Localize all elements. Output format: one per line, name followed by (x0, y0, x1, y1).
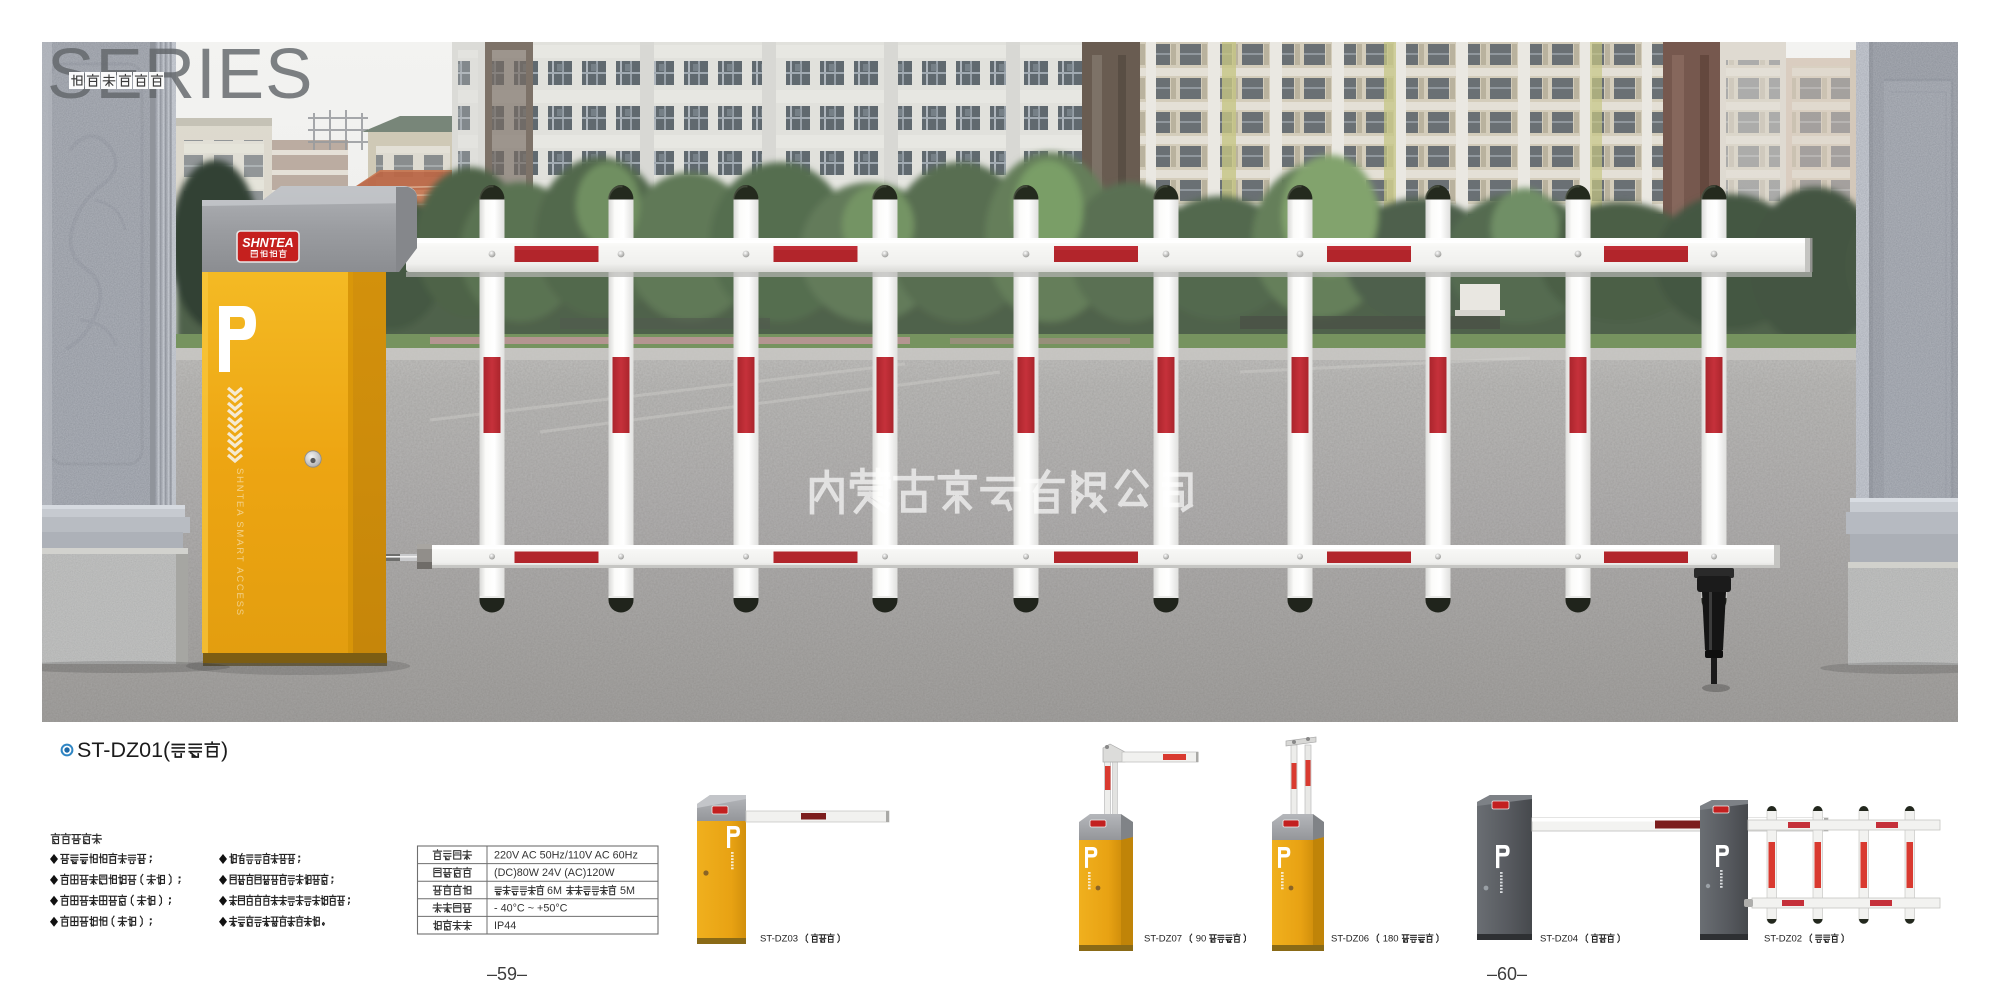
svg-text:90: 90 (1196, 933, 1207, 944)
svg-text:ST-DZ07: ST-DZ07 (1144, 933, 1182, 944)
svg-text:180: 180 (1383, 933, 1399, 944)
svg-text:220V AC 50Hz/110V AC 60Hz: 220V AC 50Hz/110V AC 60Hz (494, 850, 638, 862)
svg-text:ST-DZ01(: ST-DZ01( (77, 738, 171, 762)
svg-text:–60–: –60– (1487, 964, 1527, 984)
svg-text:ST-DZ02: ST-DZ02 (1764, 933, 1802, 944)
svg-text:- 40°C ~ +50°C: - 40°C ~ +50°C (494, 902, 568, 914)
svg-text:ST-DZ06: ST-DZ06 (1331, 933, 1369, 944)
svg-text:ST-DZ04: ST-DZ04 (1540, 933, 1578, 944)
svg-text:5M: 5M (620, 885, 635, 897)
svg-text:ST-DZ03: ST-DZ03 (760, 933, 798, 944)
svg-text:IP44: IP44 (494, 920, 516, 932)
svg-text:–59–: –59– (487, 964, 527, 984)
svg-text:(DC)80W 24V (AC)120W: (DC)80W 24V (AC)120W (494, 867, 615, 879)
svg-text:): ) (221, 738, 228, 762)
svg-text:6M: 6M (547, 885, 562, 897)
